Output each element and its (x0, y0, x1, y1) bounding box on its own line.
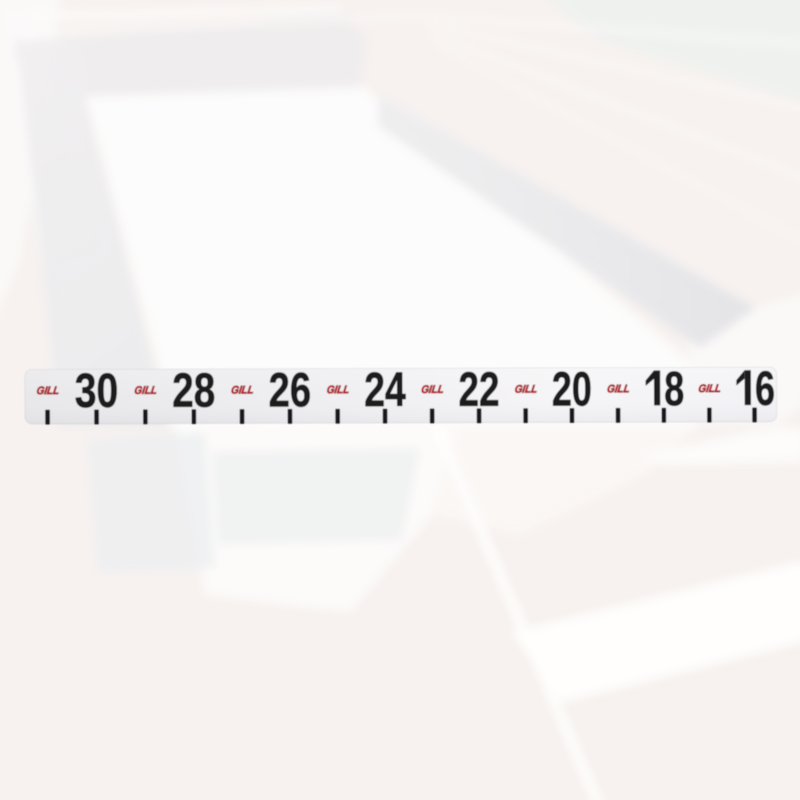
svg-text:GILL: GILL (36, 385, 60, 397)
svg-text:GILL: GILL (230, 384, 254, 396)
svg-text:GILL: GILL (606, 383, 630, 395)
svg-text:GILL: GILL (698, 383, 722, 395)
svg-text:20: 20 (552, 364, 592, 417)
svg-text:30: 30 (75, 365, 119, 418)
svg-text:GILL: GILL (514, 384, 538, 396)
svg-text:8: 8 (664, 363, 684, 416)
svg-text:GILL: GILL (134, 385, 158, 397)
svg-text:24: 24 (364, 364, 406, 417)
svg-text:GILL: GILL (326, 384, 350, 396)
svg-text:22: 22 (458, 364, 499, 417)
svg-text:26: 26 (269, 364, 312, 417)
svg-text:28: 28 (172, 365, 215, 418)
svg-text:GILL: GILL (420, 384, 444, 396)
svg-text:6: 6 (755, 363, 775, 416)
